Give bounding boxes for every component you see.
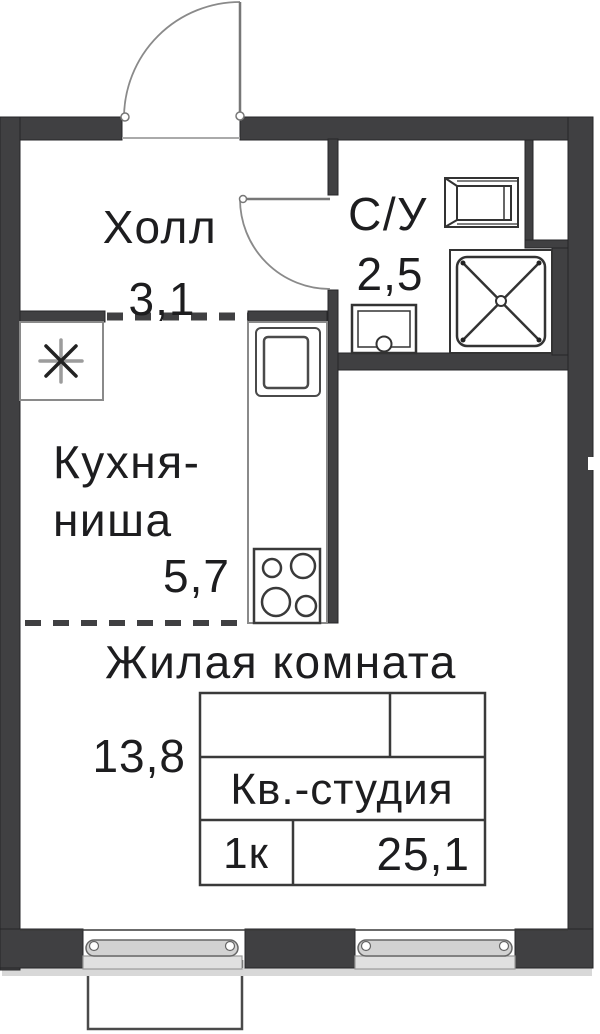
wall-bottom-pier — [245, 929, 355, 968]
entrance-door-hinge — [236, 112, 244, 120]
entrance-door-jamb-dot — [121, 113, 129, 121]
toilet-icon — [352, 305, 416, 353]
bathroom-label: С/У — [348, 188, 428, 240]
wall-bathroom-left-upper — [328, 139, 338, 195]
wall-bathroom-bottom — [338, 353, 568, 370]
living-room-area: 13,8 — [92, 730, 186, 782]
hall-area: 3,1 — [129, 273, 196, 325]
counter-top-band — [248, 311, 327, 322]
bathroom-door-tip-dot — [240, 196, 247, 203]
wall-shaft-bottom — [525, 240, 568, 248]
shower-icon — [450, 250, 552, 353]
window-left-end-dot — [90, 942, 99, 951]
kitchen-area: 5,7 — [163, 550, 230, 602]
floor-plan-canvas: Холл 3,1 С/У 2,5 Кухня- ниша 5,7 Жилая к… — [0, 0, 600, 1034]
kitchen-label-line1: Кухня- — [53, 436, 200, 488]
wall-left — [0, 117, 20, 970]
wall-shaft-left — [525, 140, 533, 248]
window-right-glass — [358, 940, 512, 956]
wall-top-right — [240, 117, 593, 140]
table-total-area: 25,1 — [376, 828, 470, 880]
wall-right — [568, 117, 593, 968]
window-left — [83, 940, 242, 969]
wall-right-notch — [588, 457, 594, 470]
window-right-end-dot — [500, 942, 509, 951]
fridge-snowflake-icon — [40, 340, 82, 382]
living-room-label: Жилая комната — [105, 636, 457, 688]
wall-bottom-left-block — [0, 929, 83, 968]
table-apartment-type: Кв.-студия — [230, 765, 453, 814]
stove-icon — [254, 549, 320, 623]
wall-bottom-right-block — [515, 929, 593, 968]
bathroom-area: 2,5 — [357, 248, 424, 300]
wall-kitchen-divider — [328, 290, 338, 623]
window-right-sill — [355, 956, 515, 969]
window-left-sill — [83, 956, 242, 969]
fridge — [20, 322, 103, 400]
hall-label: Холл — [103, 201, 217, 253]
fridge-top-band — [20, 311, 105, 322]
window-left-end-dot — [226, 942, 235, 951]
window-right — [355, 940, 515, 969]
table-rooms-count: 1к — [223, 829, 269, 878]
kitchen-label-line2: ниша — [53, 494, 173, 546]
wall-shaft-stub — [552, 248, 568, 355]
window-left-glass — [86, 940, 238, 956]
window-right-end-dot — [362, 942, 371, 951]
floor-plan: Холл 3,1 С/У 2,5 Кухня- ниша 5,7 Жилая к… — [0, 0, 600, 1034]
